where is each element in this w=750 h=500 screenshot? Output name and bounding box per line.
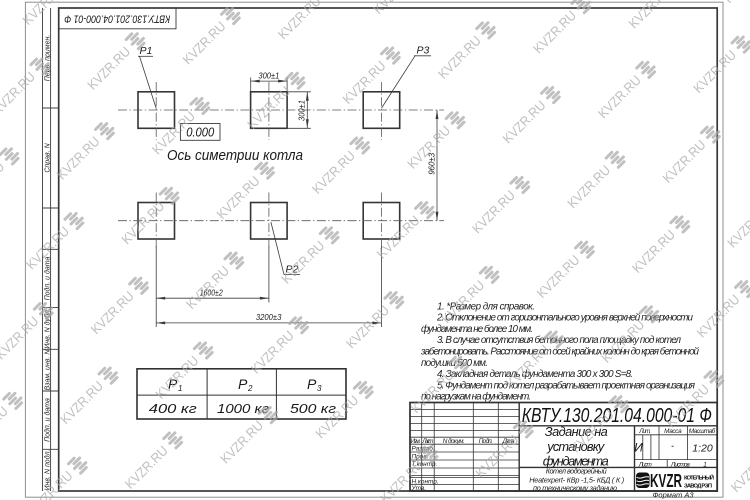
svg-text:Формат А3: Формат А3 [652,491,694,500]
svg-text:3200±3: 3200±3 [256,312,282,322]
svg-text:P3: P3 [417,45,430,57]
svg-text:И: И [634,441,643,455]
svg-text:3: 3 [317,384,322,393]
svg-text:Масштаб: Масштаб [689,427,716,435]
svg-text:Подп.: Подп. [479,437,493,445]
svg-text:ЗАВОД РЭП: ЗАВОД РЭП [684,484,712,490]
svg-text:Листов: Листов [670,461,691,468]
svg-text:по техническому заданию: по техническому заданию [533,483,618,492]
svg-text:Взам. инв. N: Взам. инв. N [45,349,52,391]
svg-text:4. Закладная деталь фундамент: 4. Закладная деталь фундамента 300 x 300… [437,369,633,380]
svg-text:1: 1 [703,461,707,468]
svg-text:Утв.: Утв. [411,485,427,492]
svg-text:N докум.: N докум. [443,437,465,445]
svg-text:5. Фундамент под котел разраб: 5. Фундамент под котел разрабатывает про… [437,380,696,391]
svg-text:Подп. и дата: Подп. и дата [44,398,52,442]
svg-text:Лист: Лист [638,461,653,468]
svg-text:КВТУ.130.201.04.000-01 Ф: КВТУ.130.201.04.000-01 Ф [64,12,170,24]
svg-text:КОТЕЛЬНЫЙ: КОТЕЛЬНЫЙ [684,474,714,482]
svg-text:1000 кг: 1000 кг [217,401,270,416]
svg-text:P: P [307,376,317,392]
svg-text:Подп. и дата: Подп. и дата [44,256,52,300]
svg-text:KVZR: KVZR [650,470,682,491]
svg-text:Ось симетрии котла: Ось симетрии котла [167,148,303,164]
svg-text:Лит.: Лит. [638,428,651,435]
svg-text:Справ. N: Справ. N [45,142,52,172]
svg-text:-: - [671,441,674,451]
svg-text:Лист: Лист [421,438,434,445]
svg-text:Котел водогрейный: Котел водогрейный [546,466,607,475]
svg-text:Перв. примен.: Перв. примен. [45,35,52,82]
svg-text:фундамента не более 10 мм.: фундамента не более 10 мм. [421,324,533,335]
svg-text:1:20: 1:20 [692,442,713,454]
svg-text:Изм.: Изм. [411,438,421,445]
svg-text:300±1: 300±1 [297,100,307,121]
svg-text:P: P [238,376,248,392]
svg-text:400 кг: 400 кг [149,401,198,416]
svg-text:300±1: 300±1 [258,71,279,81]
svg-text:забетонировать. Расстояние от: забетонировать. Расстояние от осей крайн… [420,347,700,358]
svg-text:2: 2 [247,384,253,393]
svg-text:0.000: 0.000 [186,126,214,140]
